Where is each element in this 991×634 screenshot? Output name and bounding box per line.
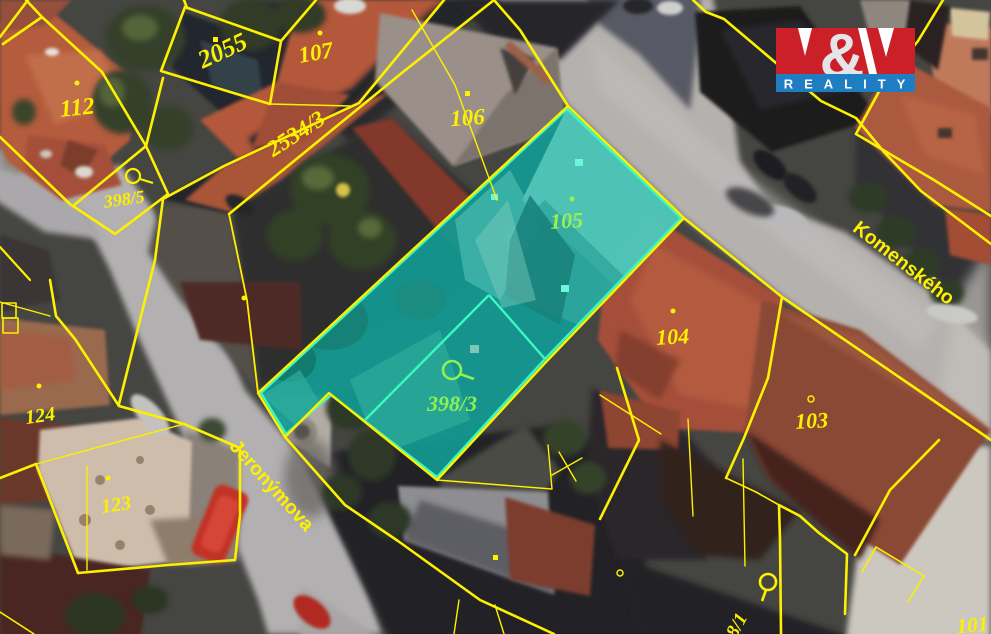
svg-text:103: 103 (794, 407, 828, 434)
svg-text:106: 106 (449, 104, 486, 131)
svg-text:124: 124 (24, 403, 57, 429)
svg-text:REALITY: REALITY (784, 77, 917, 92)
svg-text:104: 104 (655, 323, 689, 350)
svg-text:123: 123 (100, 492, 133, 518)
svg-text:101: 101 (956, 612, 989, 634)
svg-text:105: 105 (549, 207, 583, 234)
svg-text:398/3: 398/3 (426, 391, 477, 416)
svg-text:112: 112 (59, 93, 96, 122)
